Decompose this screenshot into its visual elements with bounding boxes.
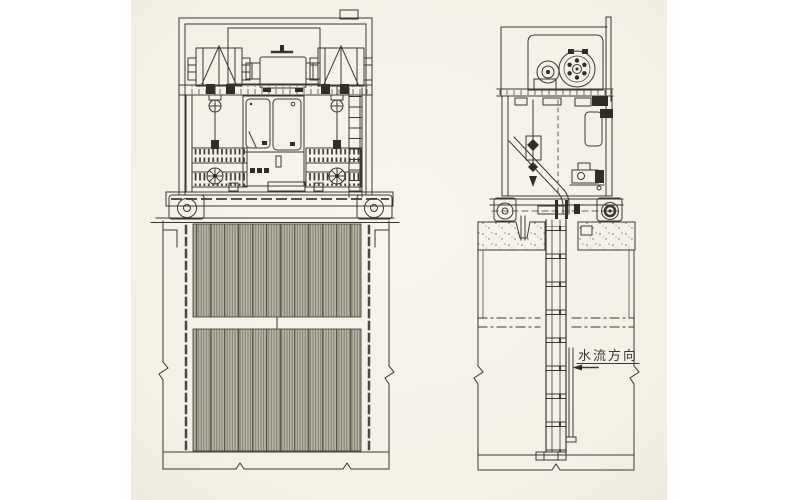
- bar-screen-panels: [193, 224, 361, 451]
- flow-direction-text: 水流方向: [578, 348, 638, 364]
- technical-drawing-canvas: 水流方向: [0, 0, 800, 500]
- access-ladder: [349, 88, 362, 197]
- screenshot-root: 水流方向: [0, 0, 800, 500]
- platform-side: [497, 89, 613, 96]
